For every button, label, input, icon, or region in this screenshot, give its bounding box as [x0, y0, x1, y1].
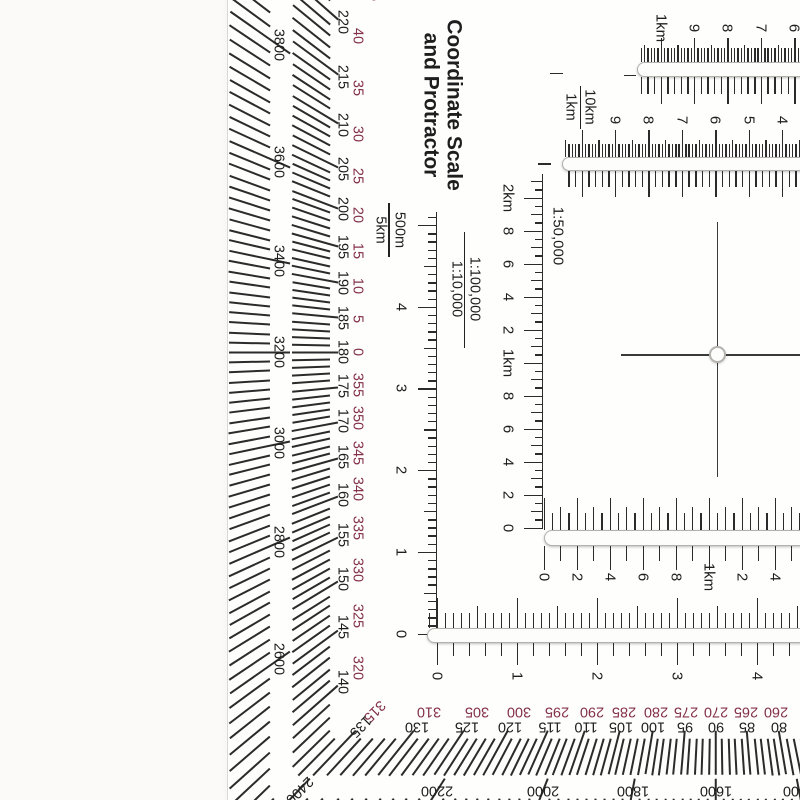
ruler-10k-horizontal-tick: [645, 613, 646, 628]
ruler-10km-top-tick: [655, 144, 656, 157]
ruler-500m-vertical-label: 1: [394, 548, 409, 556]
ruler-50k-horizontal-tick: [634, 513, 635, 530]
ruler-10k-horizontal-tick: [637, 606, 638, 628]
ruler-10km-top-tick: [729, 171, 730, 187]
degree-label-black: 95: [677, 719, 693, 734]
ruler-500m-vertical-tick: [428, 576, 436, 577]
ruler-1km-top-label: 9: [687, 24, 702, 32]
ruler-10km-top-tick: [772, 144, 773, 157]
ruler-10km-top-tick: [765, 140, 766, 157]
ruler-50k-vertical-tick: [524, 198, 542, 199]
ruler-500m-vertical-tick: [428, 233, 436, 234]
degree-label-black: 175: [335, 374, 350, 398]
ruler-50k-horizontal-tick: [626, 507, 627, 530]
ruler-10km-top-label: 8: [641, 116, 656, 124]
ruler-1km-top-tick: [781, 48, 782, 62]
ruler-50k-vertical-tick: [535, 519, 542, 520]
ruler-1km-top-tick: [677, 45, 678, 62]
ruler-10k-horizontal-tick: [477, 606, 478, 628]
ruler-10km-top-tick: [678, 144, 679, 157]
ruler-50k-horizontal-tick: [577, 498, 578, 530]
ruler-10k-horizontal-tick: [677, 598, 678, 628]
ruler-500m-vertical-tick: [428, 282, 436, 283]
ruler-10k-horizontal-tick: [725, 643, 726, 656]
ruler-10km-top-end-dash: [538, 163, 551, 165]
ruler-10km-top-tick: [668, 171, 669, 187]
ruler-10k-horizontal-tick: [645, 643, 646, 656]
ruler-50k-vertical-tick: [535, 486, 542, 487]
ruler-50k-vertical-label: 8: [501, 391, 516, 399]
ruler-1km-top-tick: [737, 48, 738, 62]
ruler-1km-top-tick: [657, 48, 658, 62]
ruler-1km-top-tick: [724, 48, 725, 62]
center-hole: [709, 346, 726, 363]
degree-label-black: 220: [335, 10, 350, 34]
title: Coordinate Scale and Protractor: [420, 19, 465, 191]
ruler-500m-vertical-tick: [424, 348, 436, 349]
ruler-10km-top-tick: [642, 144, 643, 157]
ruler-10km-top-tick: [615, 171, 616, 197]
ruler-50k-vertical-tick: [524, 363, 542, 364]
fraction-bar: [580, 86, 582, 129]
ruler-10k-horizontal-tick: [669, 613, 670, 628]
ruler-10k-horizontal-tick: [629, 643, 630, 656]
ruler-500m-vertical-tick: [424, 593, 436, 594]
ruler-10km-top-tick: [642, 171, 643, 187]
ruler-1km-top-tick: [778, 45, 779, 62]
ruler-50k-vertical-tick: [531, 313, 542, 314]
degree-label-red: 340: [350, 477, 365, 501]
ruler-10k-horizontal-tick: [453, 613, 454, 628]
ruler-1km-top-tick: [644, 45, 645, 62]
ruler-50k-vertical-tick: [531, 181, 542, 182]
ruler-500m-vertical-tick: [428, 364, 436, 365]
ruler-10k-horizontal-tick: [757, 643, 758, 665]
degree-label-black: 215: [335, 65, 350, 89]
ruler-1km-top-label: 7: [753, 24, 768, 32]
ruler-1km-top-tick: [794, 38, 795, 62]
degree-label-red: 295: [544, 704, 568, 719]
ruler-10km-top-tick: [588, 144, 589, 157]
ruler-50k-horizontal-tick: [552, 513, 553, 530]
ruler-10km-top-tick: [712, 144, 713, 157]
ruler-10km-top-tick: [645, 144, 646, 157]
ruler-50k-vertical-tick: [531, 346, 542, 347]
ruler-10km-top-tick: [635, 144, 636, 157]
degree-label-black: 90: [708, 719, 724, 734]
ruler-1km-top-tick: [674, 77, 675, 94]
ruler-500m-vertical-tick: [418, 552, 436, 553]
degree-label-red: 300: [506, 704, 530, 719]
degree-label-black: 115: [538, 719, 561, 734]
ruler-500m-vertical-tick: [428, 413, 436, 414]
ruler-10km-top-label: 7: [674, 116, 689, 124]
ruler-500m-vertical-tick: [428, 454, 436, 455]
ruler-10k-horizontal-tick: [789, 613, 790, 628]
mil-label: 2200: [421, 783, 453, 798]
ruler-50k-horizontal-tick: [577, 546, 578, 570]
ruler-10k-horizontal-tick: [613, 643, 614, 656]
ruler-50k-vertical-label: 0: [501, 523, 516, 531]
ruler-1km-top-tick: [767, 48, 768, 62]
degree-label-red: 20: [350, 207, 365, 223]
ruler-1km-top-name: 1km: [654, 14, 669, 42]
degree-label-black: 85: [739, 719, 755, 734]
ruler-1km-top-tick: [741, 48, 742, 62]
title-line1: Coordinate Scale: [442, 19, 465, 191]
ruler-1km-top-tick: [651, 48, 652, 62]
ruler-500m-vertical-tick: [428, 584, 436, 585]
ruler-10km-top-tick: [688, 171, 689, 187]
ruler-10km-top-tick: [622, 144, 623, 157]
ruler-1km-top-tick: [664, 48, 665, 62]
ruler-10km-top-tick: [792, 144, 793, 157]
degree-label-red: 265: [734, 704, 758, 719]
ruler-50k-vertical-tick: [535, 453, 542, 454]
ruler-500m-vertical-tick: [428, 339, 436, 340]
ruler-10k-horizontal-tick: [501, 643, 502, 656]
ruler-10km-top-tick: [722, 171, 723, 187]
scale-label-500m: 500m: [392, 212, 407, 248]
ruler-500m-vertical-tick: [428, 478, 436, 479]
ruler-10km-top-tick: [608, 171, 609, 187]
ruler-1km-top-slot: [637, 62, 800, 77]
ruler-10km-top-tick: [665, 140, 666, 157]
ruler-1km-top-tick: [681, 48, 682, 62]
ruler-500m-vertical-tick: [428, 380, 436, 381]
ruler-50k-horizontal-label: 8: [668, 573, 683, 581]
degree-label-red: 285: [612, 704, 636, 719]
ruler-10km-top-label: 5: [741, 116, 756, 124]
mil-label: 2600: [271, 643, 286, 675]
ruler-1km-top-tick: [714, 77, 715, 94]
ruler-50k-horizontal-tick: [725, 546, 726, 561]
ruler-50k-vertical-tick: [535, 321, 542, 322]
ruler-10km-top-tick: [749, 171, 750, 197]
mil-label: 2000: [527, 783, 559, 798]
ruler-1km-top-tick: [717, 48, 718, 62]
ruler-50k-horizontal-tick: [791, 507, 792, 530]
degree-label-black: 195: [335, 235, 350, 259]
degree-label-black: 205: [335, 157, 350, 181]
ruler-1km-top-tick: [714, 48, 715, 62]
degree-label-red: 10: [350, 277, 365, 293]
ruler-1km-top-tick: [784, 48, 785, 62]
degree-label-red: 270: [704, 704, 728, 719]
degree-label-black: 210: [335, 113, 350, 137]
ruler-1km-top-tick: [767, 77, 768, 94]
ruler-10km-top-tick: [675, 171, 676, 187]
ruler-1km-top-label: 6: [787, 24, 800, 32]
ruler-10k-horizontal-label: 3: [670, 672, 685, 680]
ruler-1km-top-end-dash: [624, 75, 636, 77]
ruler-10k-horizontal-tick: [789, 643, 790, 656]
ruler-500m-vertical-tick: [428, 290, 436, 291]
ruler-10km-top-tick: [618, 144, 619, 157]
ruler-1km-top-tick: [794, 77, 795, 104]
ruler-10km-top-tick: [779, 144, 780, 157]
ruler-500m-vertical-tick: [424, 511, 436, 512]
ruler-50k-vertical-tick: [524, 429, 542, 430]
ruler-500m-vertical-tick: [428, 217, 436, 218]
ruler-10km-top-tick: [648, 171, 649, 197]
ruler-500m-vertical-tick: [428, 299, 436, 300]
ruler-10k-horizontal-tick: [709, 643, 710, 656]
ruler-10k-horizontal-tick: [597, 643, 598, 665]
ruler-10k-horizontal-tick: [429, 613, 430, 628]
ruler-10km-top-tick: [719, 144, 720, 157]
ruler-500m-vertical-label: 2: [394, 466, 409, 474]
ruler-500m-vertical-line: [436, 212, 438, 635]
ruler-50k-horizontal-label: 0: [536, 573, 551, 581]
ruler-50k-vertical-tick: [535, 255, 542, 256]
ruler-500m-vertical-tick: [428, 527, 436, 528]
ruler-50k-horizontal-tick: [560, 507, 561, 530]
ruler-50k-vertical-tick: [531, 379, 542, 380]
ruler-10k-horizontal-tick: [541, 613, 542, 628]
fraction-bar: [464, 232, 466, 348]
ruler-10k-horizontal-tick: [549, 613, 550, 628]
mil-label: 3200: [271, 336, 286, 368]
ruler-50k-vertical-tick: [524, 495, 542, 496]
ruler-10km-top-tick: [675, 144, 676, 157]
ruler-50k-horizontal-tick: [593, 546, 594, 561]
ruler-1km-top-tick: [798, 48, 799, 62]
ruler-1km-top-tick: [791, 48, 792, 62]
ruler-1km-top-tick: [681, 77, 682, 94]
ruler-50k-horizontal-tick: [544, 498, 545, 530]
ruler-10k-horizontal-tick: [437, 598, 438, 628]
ruler-1km-top-tick: [687, 48, 688, 62]
ruler-50k-vertical-line: [542, 174, 544, 529]
ruler-10km-top-tick: [705, 144, 706, 157]
ruler-1km-top-end-dash: [550, 73, 563, 75]
mil-label: 2800: [271, 526, 286, 558]
ruler-500m-vertical-tick: [428, 544, 436, 545]
ruler-10km-top-tick: [625, 144, 626, 157]
ruler-500m-vertical-tick: [418, 388, 436, 389]
ruler-10km-top-tick: [702, 171, 703, 187]
degree-label-red: 15: [350, 243, 365, 259]
ruler-1km-top-tick: [727, 77, 728, 104]
ruler-10k-horizontal-tick: [581, 613, 582, 628]
ruler-10k-horizontal-tick: [573, 613, 574, 628]
ruler-10k-horizontal-tick: [589, 613, 590, 628]
fraction-bar: [388, 203, 390, 257]
ruler-50k-horizontal-label: 1km: [701, 563, 716, 591]
degree-label-black: 80: [771, 719, 787, 734]
ruler-1km-top-tick: [721, 48, 722, 62]
ruler-10k-horizontal-tick: [693, 643, 694, 656]
ruler-10km-top-tick: [638, 144, 639, 157]
degree-label-black: 160: [335, 483, 350, 507]
degree-label-black: 120: [498, 719, 522, 734]
ruler-50k-horizontal-tick: [692, 507, 693, 530]
ruler-50k-horizontal-tick: [791, 546, 792, 561]
degree-label-black: 125: [454, 719, 478, 734]
ruler-10k-horizontal-slot: [427, 628, 800, 643]
degree-label-red: 40: [350, 28, 365, 44]
degree-label-red: 45: [367, 0, 382, 1]
ruler-10km-top-tick: [668, 144, 669, 157]
ruler-50k-vertical-tick: [535, 354, 542, 355]
ruler-50k-horizontal-label: 2: [569, 573, 584, 581]
mil-label: 1600: [700, 783, 732, 798]
ruler-500m-vertical-tick: [428, 274, 436, 275]
ruler-1km-top-tick: [747, 77, 748, 94]
ruler-50k-vertical-tick: [535, 338, 542, 339]
ruler-10km-top-tick: [632, 140, 633, 157]
ruler-10km-top-tick: [588, 171, 589, 187]
ruler-10km-top-tick: [785, 144, 786, 157]
ruler-1km-top-tick: [667, 48, 668, 62]
ruler-10k-horizontal-label: 0: [430, 672, 445, 680]
ruler-50k-vertical-tick: [524, 330, 542, 331]
degree-label-black: 190: [335, 271, 350, 295]
ruler-500m-vertical-tick: [424, 429, 436, 430]
ruler-50k-horizontal-tick: [700, 513, 701, 530]
ruler-50k-horizontal-slot: [544, 530, 800, 546]
ruler-1km-top-tick: [771, 48, 772, 62]
degree-tick: [292, 352, 338, 354]
ruler-1km-top-tick: [647, 48, 648, 62]
ruler-1km-top-tick: [757, 48, 758, 62]
ruler-10km-top-tick: [595, 144, 596, 157]
degree-label-black: 130: [405, 719, 429, 734]
ruler-1km-top-tick: [751, 48, 752, 62]
ruler-10km-top-tick: [795, 171, 796, 187]
degree-label-red: 30: [350, 126, 365, 142]
ruler-50k-vertical-tick: [535, 420, 542, 421]
protractor-photo: Coordinate Scale and Protractor 5km 500m…: [0, 0, 800, 800]
ruler-10k-horizontal-tick: [773, 643, 774, 656]
ruler-50k-horizontal-tick: [742, 498, 743, 530]
ruler-10km-top-tick: [732, 140, 733, 157]
ruler-10km-top-label: 9: [608, 116, 623, 124]
ruler-10k-horizontal-tick: [493, 613, 494, 628]
degree-label-black: 145: [335, 615, 350, 639]
ruler-1km-top-tick: [741, 77, 742, 94]
ruler-500m-vertical-tick: [418, 225, 436, 226]
ruler-500m-vertical-tick: [428, 495, 436, 496]
ruler-10km-top-tick: [582, 130, 583, 157]
ruler-10k-horizontal-tick: [757, 598, 758, 628]
ruler-500m-vertical-label: 4: [394, 303, 409, 311]
ruler-50k-horizontal-label: 4: [602, 573, 617, 581]
ruler-500m-vertical-tick: [428, 241, 436, 242]
degree-label-red: 260: [764, 704, 788, 719]
mil-label: 1800: [617, 783, 649, 798]
ruler-10km-top-tick: [568, 144, 569, 157]
degree-tick: [708, 739, 710, 775]
mil-label: 3400: [271, 244, 286, 276]
ruler-10km-top-slot: [562, 157, 800, 171]
ruler-10km-top-tick: [729, 144, 730, 157]
ruler-500m-vertical-tick: [428, 462, 436, 463]
ruler-10k-horizontal-tick: [581, 643, 582, 656]
ruler-10km-top-tick: [628, 171, 629, 187]
degree-label-black: 155: [335, 523, 350, 547]
ruler-50k-vertical-label: 2km: [501, 183, 516, 211]
degree-label-red: 345: [350, 441, 365, 465]
degree-label-black: 200: [335, 197, 350, 221]
ruler-10k-horizontal-label: 1: [510, 672, 525, 680]
ruler-10k-horizontal-tick: [453, 643, 454, 656]
ruler-1km-top-tick: [747, 48, 748, 62]
ruler-1km-top-tick: [671, 48, 672, 62]
ruler-50k-horizontal-tick: [560, 546, 561, 561]
ruler-10k-horizontal-tick: [781, 613, 782, 628]
ruler-10k-horizontal-tick: [509, 613, 510, 628]
ruler-50k-vertical-tick: [531, 214, 542, 215]
ruler-50k-vertical-tick: [524, 462, 542, 463]
ruler-50k-horizontal-tick: [676, 546, 677, 570]
ruler-50k-horizontal-tick: [601, 513, 602, 530]
ruler-50k-vertical-tick: [535, 189, 542, 190]
ruler-50k-horizontal-tick: [742, 546, 743, 570]
ruler-50k-horizontal-tick: [618, 513, 619, 530]
mil-label: 1400: [783, 783, 800, 798]
scale-label-5km: 5km: [373, 216, 388, 243]
degree-label-black: 185: [335, 306, 350, 330]
ruler-50k-vertical-tick: [535, 305, 542, 306]
ruler-1km-top-tick: [647, 77, 648, 94]
ruler-10km-top-tick: [735, 144, 736, 157]
ruler-10k-horizontal-tick: [621, 613, 622, 628]
ruler-10km-top-tick: [789, 171, 790, 187]
ruler-10km-top-tick: [735, 171, 736, 187]
ruler-10k-horizontal-tick: [765, 613, 766, 628]
ruler-50k-vertical-tick: [535, 437, 542, 438]
ruler-10k-horizontal-tick: [485, 613, 486, 628]
ruler-10k-horizontal-tick: [629, 613, 630, 628]
ruler-1km-top-tick: [704, 48, 705, 62]
ruler-10k-horizontal-tick: [533, 643, 534, 656]
ruler-500m-vertical-tick: [418, 470, 436, 471]
ruler-10k-horizontal-tick: [565, 613, 566, 628]
ruler-10km-top-tick: [635, 171, 636, 187]
ruler-50k-horizontal-tick: [750, 513, 751, 530]
scale-label-1-100000: 1:100,000: [466, 257, 481, 322]
ruler-1km-top-tick: [691, 48, 692, 62]
ruler-500m-vertical-tick: [428, 331, 436, 332]
scale-label-1-10000: 1:10,000: [448, 261, 463, 317]
ruler-10km-top-tick: [692, 144, 693, 157]
degree-label-black: 140: [335, 669, 350, 693]
ruler-10km-top-tick: [769, 144, 770, 157]
ruler-10km-top-tick: [682, 130, 683, 157]
ruler-50k-vertical-tick: [531, 412, 542, 413]
ruler-500m-vertical-tick: [428, 397, 436, 398]
ruler-10k-horizontal-tick: [661, 643, 662, 656]
degree-label-red: 320: [350, 656, 365, 680]
ruler-10k-horizontal-tick: [461, 613, 462, 628]
ruler-10km-top-tick: [725, 144, 726, 157]
ruler-50k-vertical-label: 4: [501, 457, 516, 465]
ruler-10k-horizontal-tick: [653, 613, 654, 628]
ruler-50k-vertical-tick: [535, 371, 542, 372]
degree-label-red: 25: [350, 168, 365, 184]
ruler-10km-top-tick: [742, 171, 743, 187]
ruler-10km-top-tick: [795, 144, 796, 157]
ruler-50k-vertical-label: 1km: [501, 348, 516, 376]
ruler-1km-top-tick: [701, 48, 702, 62]
degree-label-red: 0: [350, 348, 365, 356]
ruler-10km-top-tick: [682, 171, 683, 197]
mil-label: 3600: [271, 145, 286, 177]
ruler-10km-top-tick: [605, 144, 606, 157]
ruler-50k-vertical-label: 4: [501, 292, 516, 300]
